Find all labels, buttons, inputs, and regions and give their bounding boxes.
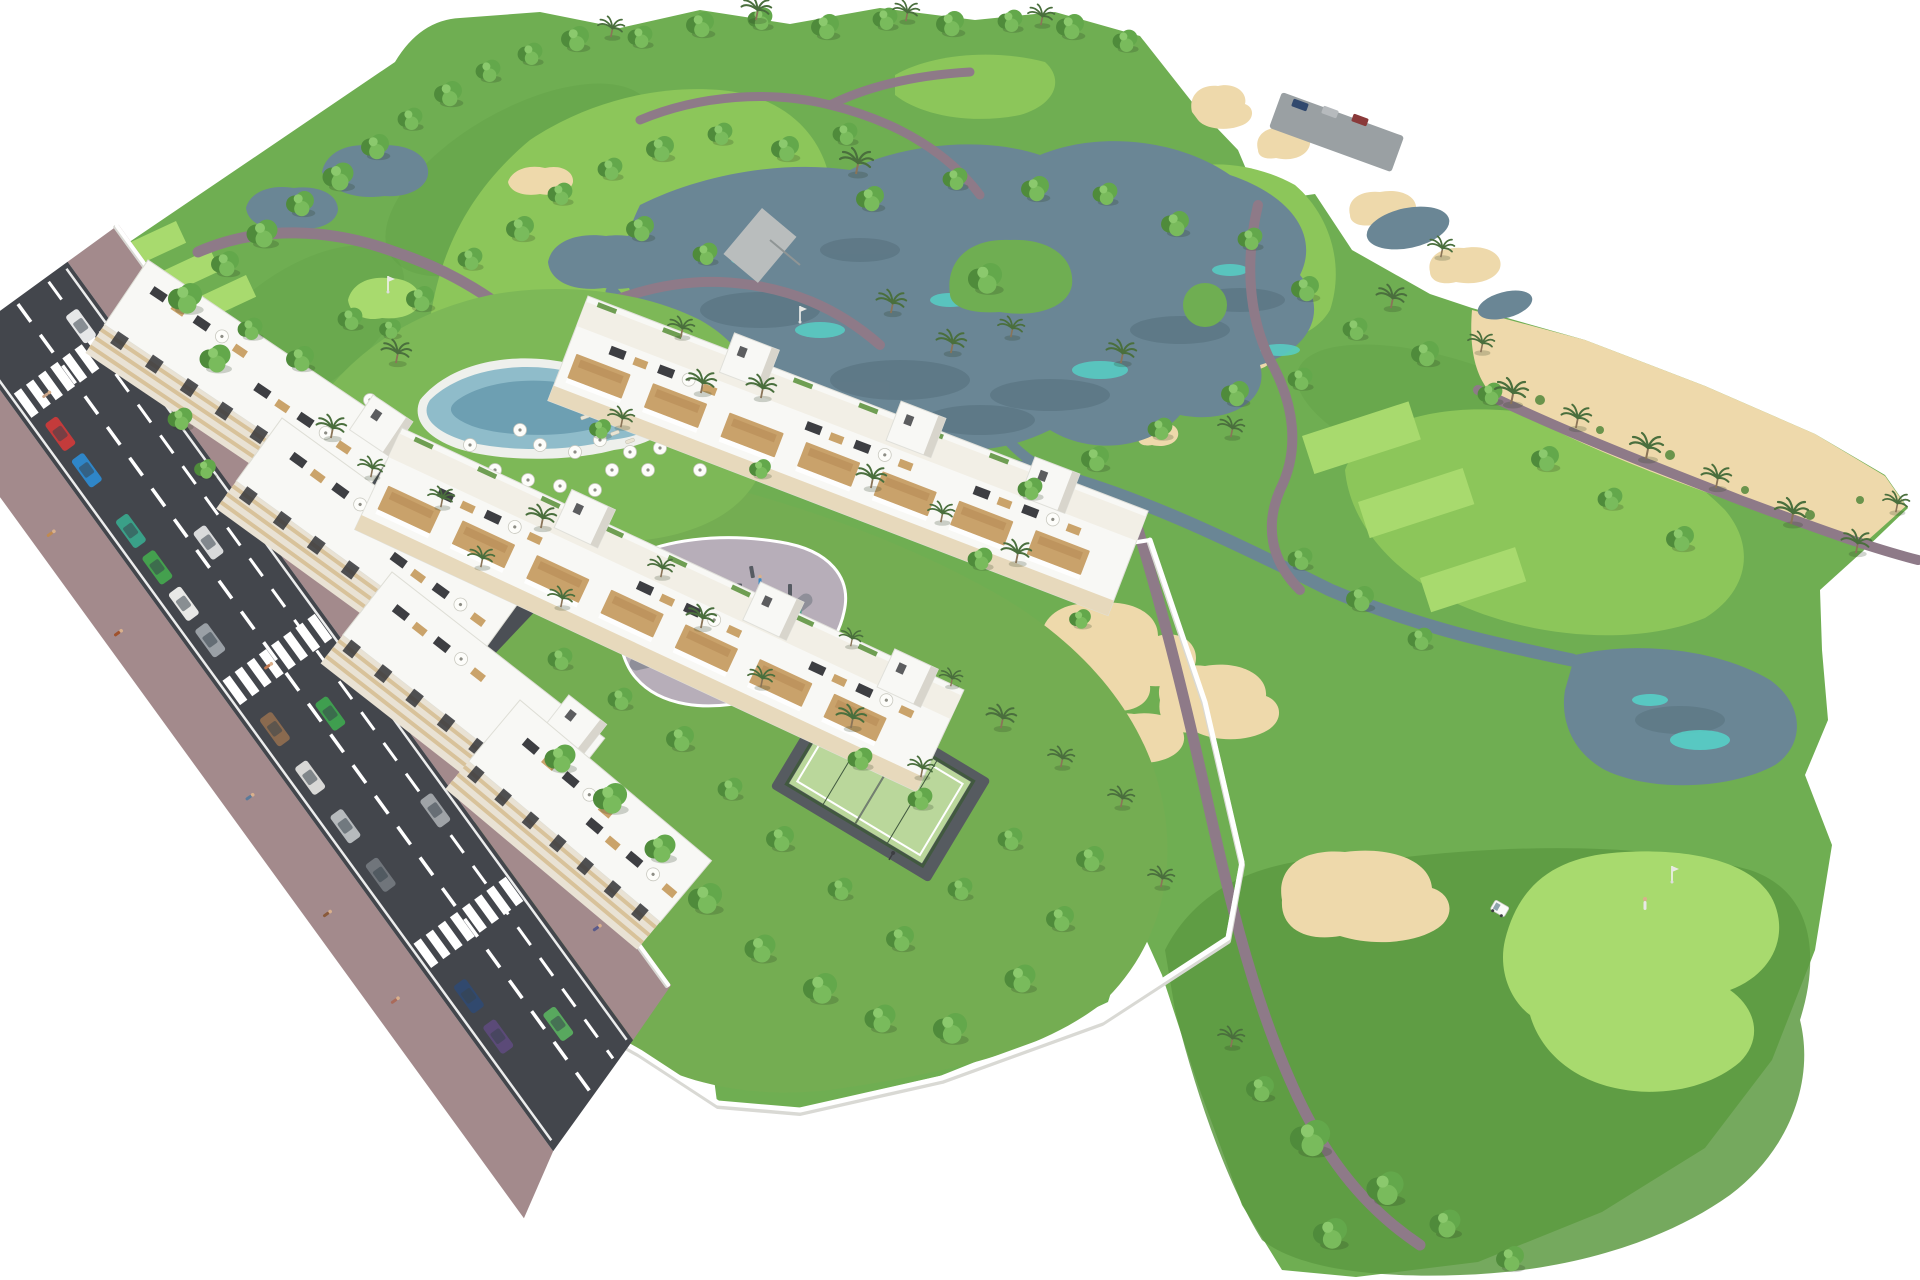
parasol-icon [569,446,582,459]
play-equipment [788,584,792,596]
parasol-icon [534,439,547,452]
golfer-figure [1643,897,1647,910]
aerial-render: Aerial 3D architectural rendering of a g… [0,0,1920,1280]
parasol-icon [589,484,602,497]
parasol-icon [514,424,527,437]
parasol-icon [642,464,655,477]
lake-island [949,240,1072,314]
scene-svg [0,0,1920,1280]
parasol-icon [554,480,567,493]
parasol-icon [624,446,637,459]
parasol-icon [464,439,477,452]
parasol-icon [606,464,619,477]
parasol-icon [694,464,707,477]
